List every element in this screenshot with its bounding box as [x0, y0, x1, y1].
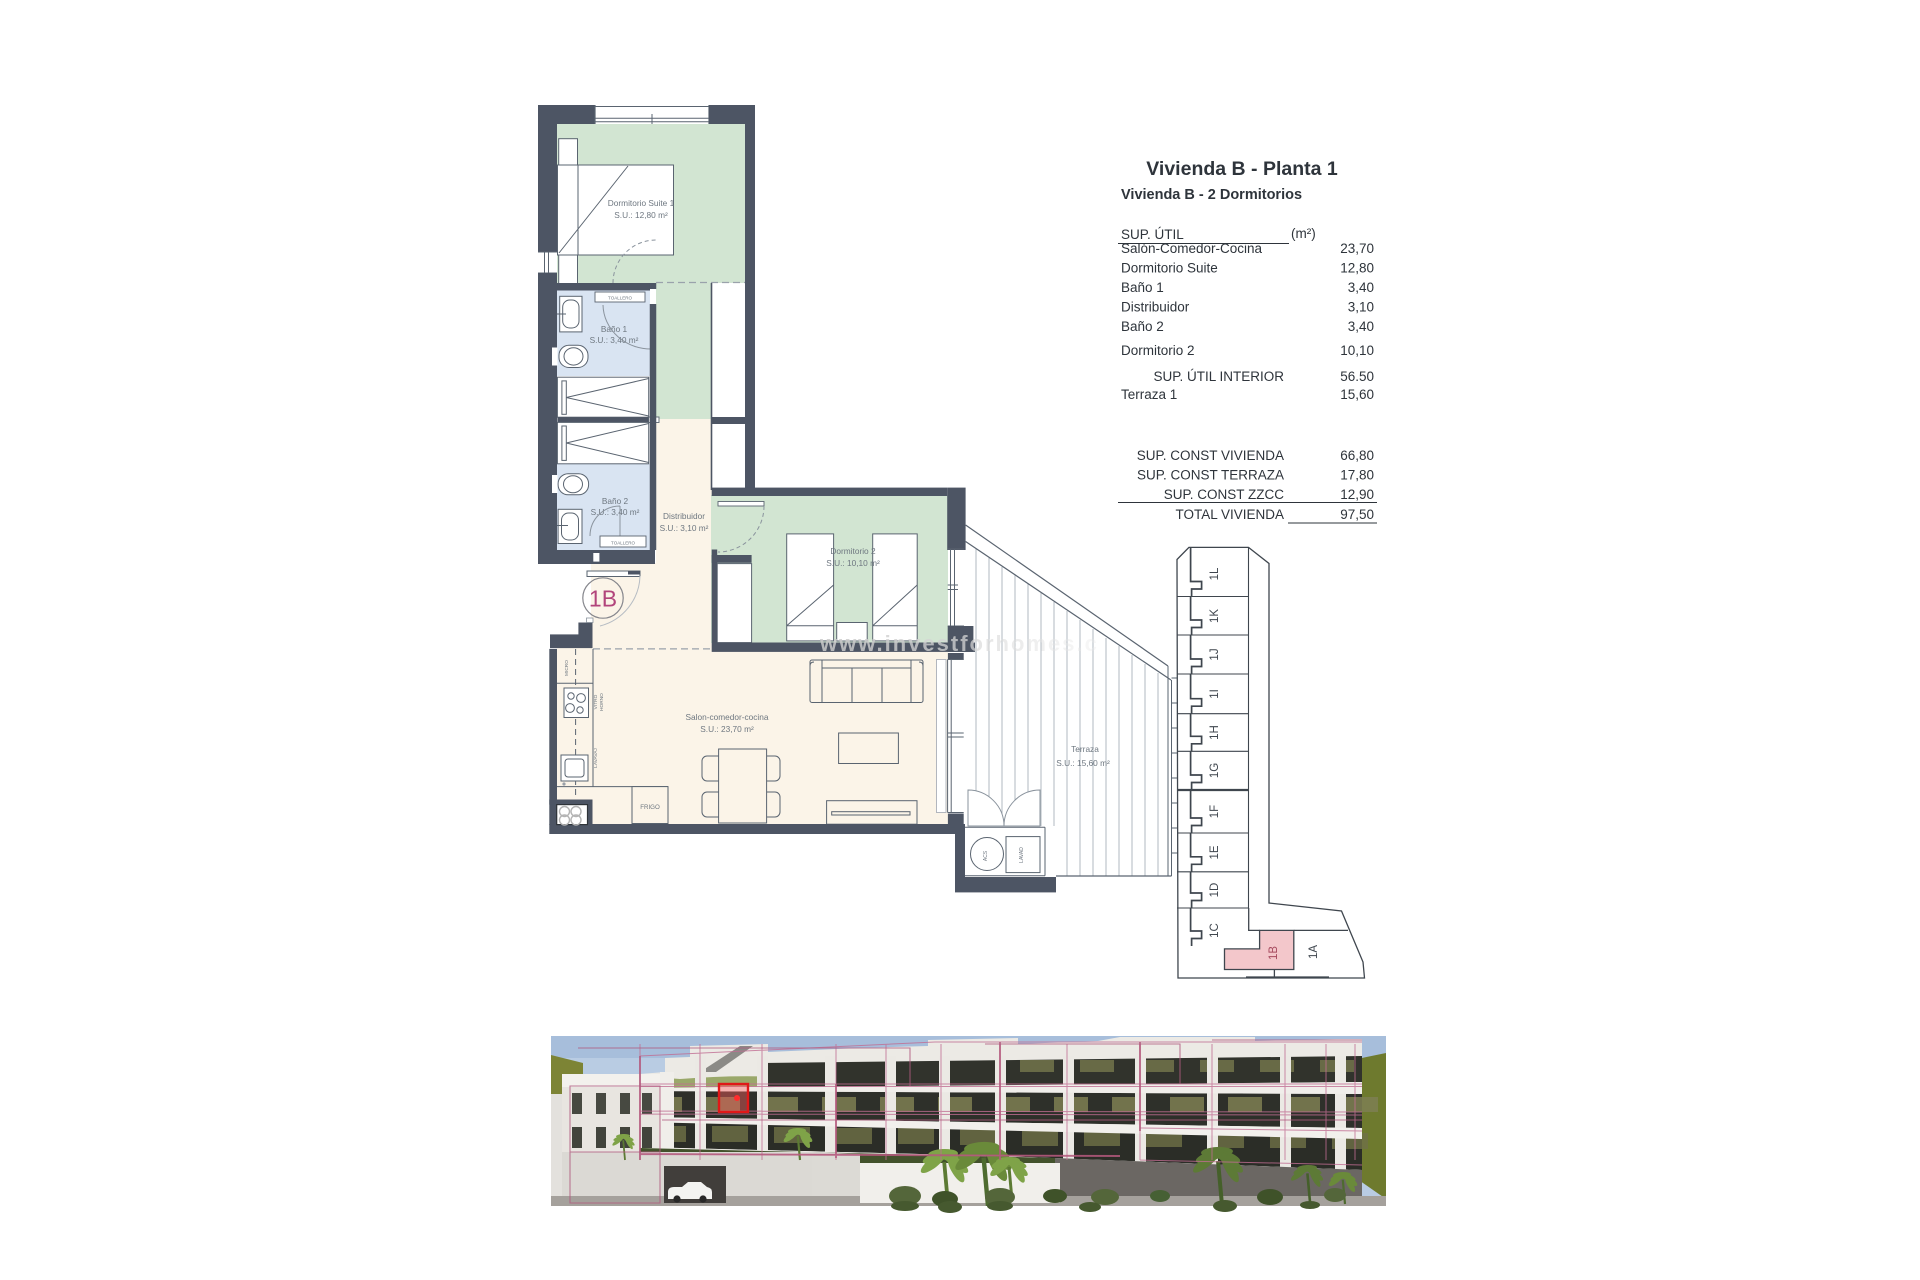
svg-text:56.50: 56.50: [1340, 369, 1374, 384]
svg-text:1B: 1B: [589, 586, 617, 612]
svg-text:Vivienda B - 2 Dormitorios: Vivienda B - 2 Dormitorios: [1121, 187, 1302, 203]
svg-text:SUP. CONST ZZCC: SUP. CONST ZZCC: [1164, 487, 1285, 502]
svg-text:12,80: 12,80: [1340, 261, 1374, 276]
svg-text:S.U.: 3,10 m²: S.U.: 3,10 m²: [660, 523, 709, 533]
svg-text:Dormitorio Suite: Dormitorio Suite: [1121, 261, 1218, 276]
svg-text:12,90: 12,90: [1340, 487, 1374, 502]
svg-text:S.U.: 10,10 m²: S.U.: 10,10 m²: [826, 558, 880, 568]
svg-text:1H: 1H: [1209, 725, 1221, 740]
svg-text:1L: 1L: [1209, 567, 1221, 580]
svg-text:TOALLERO: TOALLERO: [611, 541, 635, 546]
svg-text:66,80: 66,80: [1340, 448, 1374, 463]
svg-text:15,60: 15,60: [1340, 387, 1374, 402]
svg-text:SUP. CONST VIVIENDA: SUP. CONST VIVIENDA: [1137, 448, 1284, 463]
svg-text:HORNO: HORNO: [599, 693, 605, 711]
svg-text:SUP. ÚTIL INTERIOR: SUP. ÚTIL INTERIOR: [1153, 369, 1284, 384]
svg-text:Dormitorio Suite 1: Dormitorio Suite 1: [608, 198, 675, 208]
svg-text:3,40: 3,40: [1348, 280, 1374, 295]
svg-text:TOTAL VIVIENDA: TOTAL VIVIENDA: [1175, 507, 1284, 522]
svg-text:Salón-Comedor-Cocina: Salón-Comedor-Cocina: [1121, 241, 1263, 256]
svg-text:1A: 1A: [1308, 945, 1320, 959]
svg-text:Distribuidor: Distribuidor: [1121, 300, 1190, 315]
svg-text:1C: 1C: [1209, 923, 1221, 938]
svg-text:TOALLERO: TOALLERO: [608, 296, 632, 301]
svg-text:1D: 1D: [1209, 883, 1221, 898]
svg-text:FRIGO: FRIGO: [640, 804, 660, 811]
svg-text:Distribuidor: Distribuidor: [663, 511, 705, 521]
svg-text:1I: 1I: [1209, 689, 1221, 699]
svg-text:LAVAVAJ: LAVAVAJ: [593, 748, 599, 768]
svg-text:Terraza: Terraza: [1071, 744, 1099, 754]
svg-text:www.investforhomes.c: www.investforhomes.c: [819, 631, 1099, 656]
svg-text:1F: 1F: [1209, 805, 1221, 818]
svg-text:LAVAD: LAVAD: [1019, 847, 1025, 863]
svg-text:3,40: 3,40: [1348, 319, 1374, 334]
svg-text:97,50: 97,50: [1340, 507, 1374, 522]
svg-text:SUP. ÚTIL: SUP. ÚTIL: [1121, 227, 1184, 242]
svg-text:Baño 1: Baño 1: [1121, 280, 1164, 295]
svg-text:Dormitorio 2: Dormitorio 2: [1121, 343, 1195, 358]
svg-text:1E: 1E: [1209, 845, 1221, 859]
svg-text:Salon-comedor-cocina: Salon-comedor-cocina: [685, 712, 768, 722]
svg-text:10,10: 10,10: [1340, 343, 1374, 358]
svg-text:ACS: ACS: [983, 850, 989, 861]
svg-text:1B: 1B: [1268, 946, 1280, 960]
svg-text:1J: 1J: [1209, 648, 1221, 660]
svg-text:1G: 1G: [1209, 763, 1221, 778]
svg-text:Baño 2: Baño 2: [602, 496, 629, 506]
svg-text:SUP. CONST TERRAZA: SUP. CONST TERRAZA: [1137, 468, 1284, 483]
svg-text:1K: 1K: [1209, 609, 1221, 623]
svg-text:S.U.: 15,60 m²: S.U.: 15,60 m²: [1056, 758, 1110, 768]
svg-text:17,80: 17,80: [1340, 468, 1374, 483]
svg-text:MICRO: MICRO: [564, 660, 570, 676]
svg-text:Vivienda B - Planta 1: Vivienda B - Planta 1: [1146, 158, 1338, 180]
svg-text:Terraza 1: Terraza 1: [1121, 387, 1177, 402]
svg-text:(m²): (m²): [1291, 226, 1316, 241]
svg-text:S.U.: 3,40 m²: S.U.: 3,40 m²: [590, 335, 639, 345]
svg-text:VITRO: VITRO: [593, 694, 599, 709]
svg-text:Baño 2: Baño 2: [1121, 319, 1164, 334]
svg-text:3,10: 3,10: [1348, 300, 1374, 315]
svg-text:S.U.: 23,70 m²: S.U.: 23,70 m²: [700, 724, 754, 734]
svg-text:S.U.: 12,80 m²: S.U.: 12,80 m²: [614, 210, 668, 220]
svg-text:23,70: 23,70: [1340, 241, 1374, 256]
svg-text:Dormitorio 2: Dormitorio 2: [830, 546, 876, 556]
